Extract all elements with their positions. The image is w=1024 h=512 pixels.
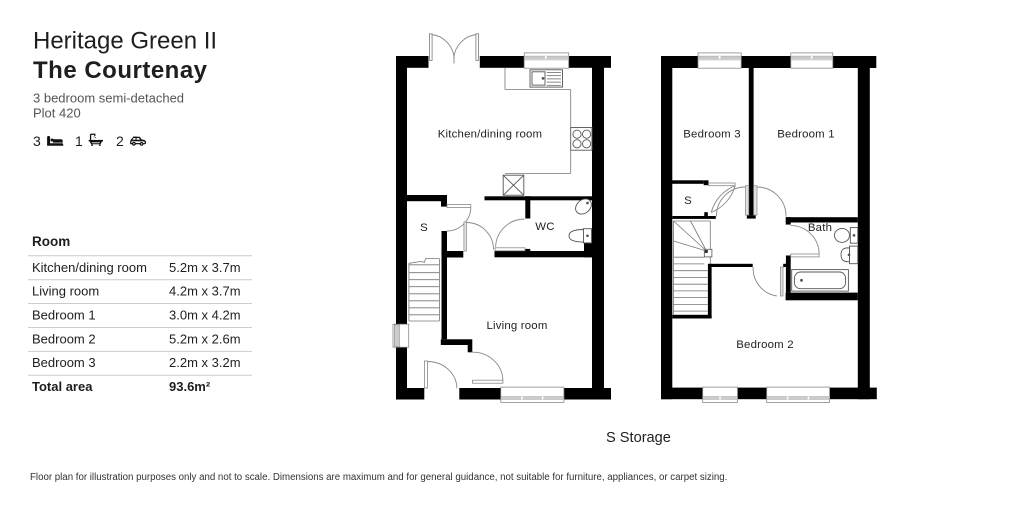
svg-text:Heritage Green II: Heritage Green II — [33, 28, 217, 55]
svg-text:5.2m x 2.6m: 5.2m x 2.6m — [169, 331, 241, 346]
svg-text:Total area: Total area — [32, 379, 93, 394]
svg-text:Kitchen/dining room: Kitchen/dining room — [32, 260, 147, 275]
svg-text:2.2m x 3.2m: 2.2m x 3.2m — [169, 355, 241, 370]
svg-text:3.0m x 4.2m: 3.0m x 4.2m — [169, 308, 241, 323]
svg-text:The Courtenay: The Courtenay — [33, 57, 208, 84]
svg-text:3: 3 — [33, 133, 41, 149]
svg-text:S: S — [420, 222, 428, 234]
svg-text:Bedroom 1: Bedroom 1 — [777, 129, 835, 141]
svg-text:2: 2 — [116, 133, 124, 149]
svg-text:S: S — [684, 195, 692, 207]
svg-text:Kitchen/dining room: Kitchen/dining room — [438, 129, 542, 141]
svg-text:Bath: Bath — [808, 222, 832, 234]
svg-text:WC: WC — [535, 221, 554, 233]
svg-text:Bedroom 1: Bedroom 1 — [32, 308, 96, 323]
svg-text:93.6m²: 93.6m² — [169, 379, 211, 394]
svg-text:S Storage: S Storage — [606, 430, 671, 446]
svg-text:Living room: Living room — [486, 320, 547, 332]
svg-text:3 bedroom semi-detached: 3 bedroom semi-detached — [33, 91, 184, 106]
svg-text:5.2m x 3.7m: 5.2m x 3.7m — [169, 260, 241, 275]
svg-text:Bedroom 2: Bedroom 2 — [736, 339, 794, 351]
svg-text:4.2m x 3.7m: 4.2m x 3.7m — [169, 284, 241, 299]
svg-text:Bedroom 2: Bedroom 2 — [32, 331, 96, 346]
svg-text:Bedroom 3: Bedroom 3 — [32, 355, 96, 370]
svg-text:Plot 420: Plot 420 — [33, 106, 81, 121]
svg-text:Floor plan for illustration pu: Floor plan for illustration purposes onl… — [30, 472, 727, 483]
svg-text:1: 1 — [75, 133, 83, 149]
svg-text:Living room: Living room — [32, 284, 99, 299]
svg-text:Bedroom 3: Bedroom 3 — [683, 129, 741, 141]
svg-text:Room: Room — [32, 234, 70, 249]
